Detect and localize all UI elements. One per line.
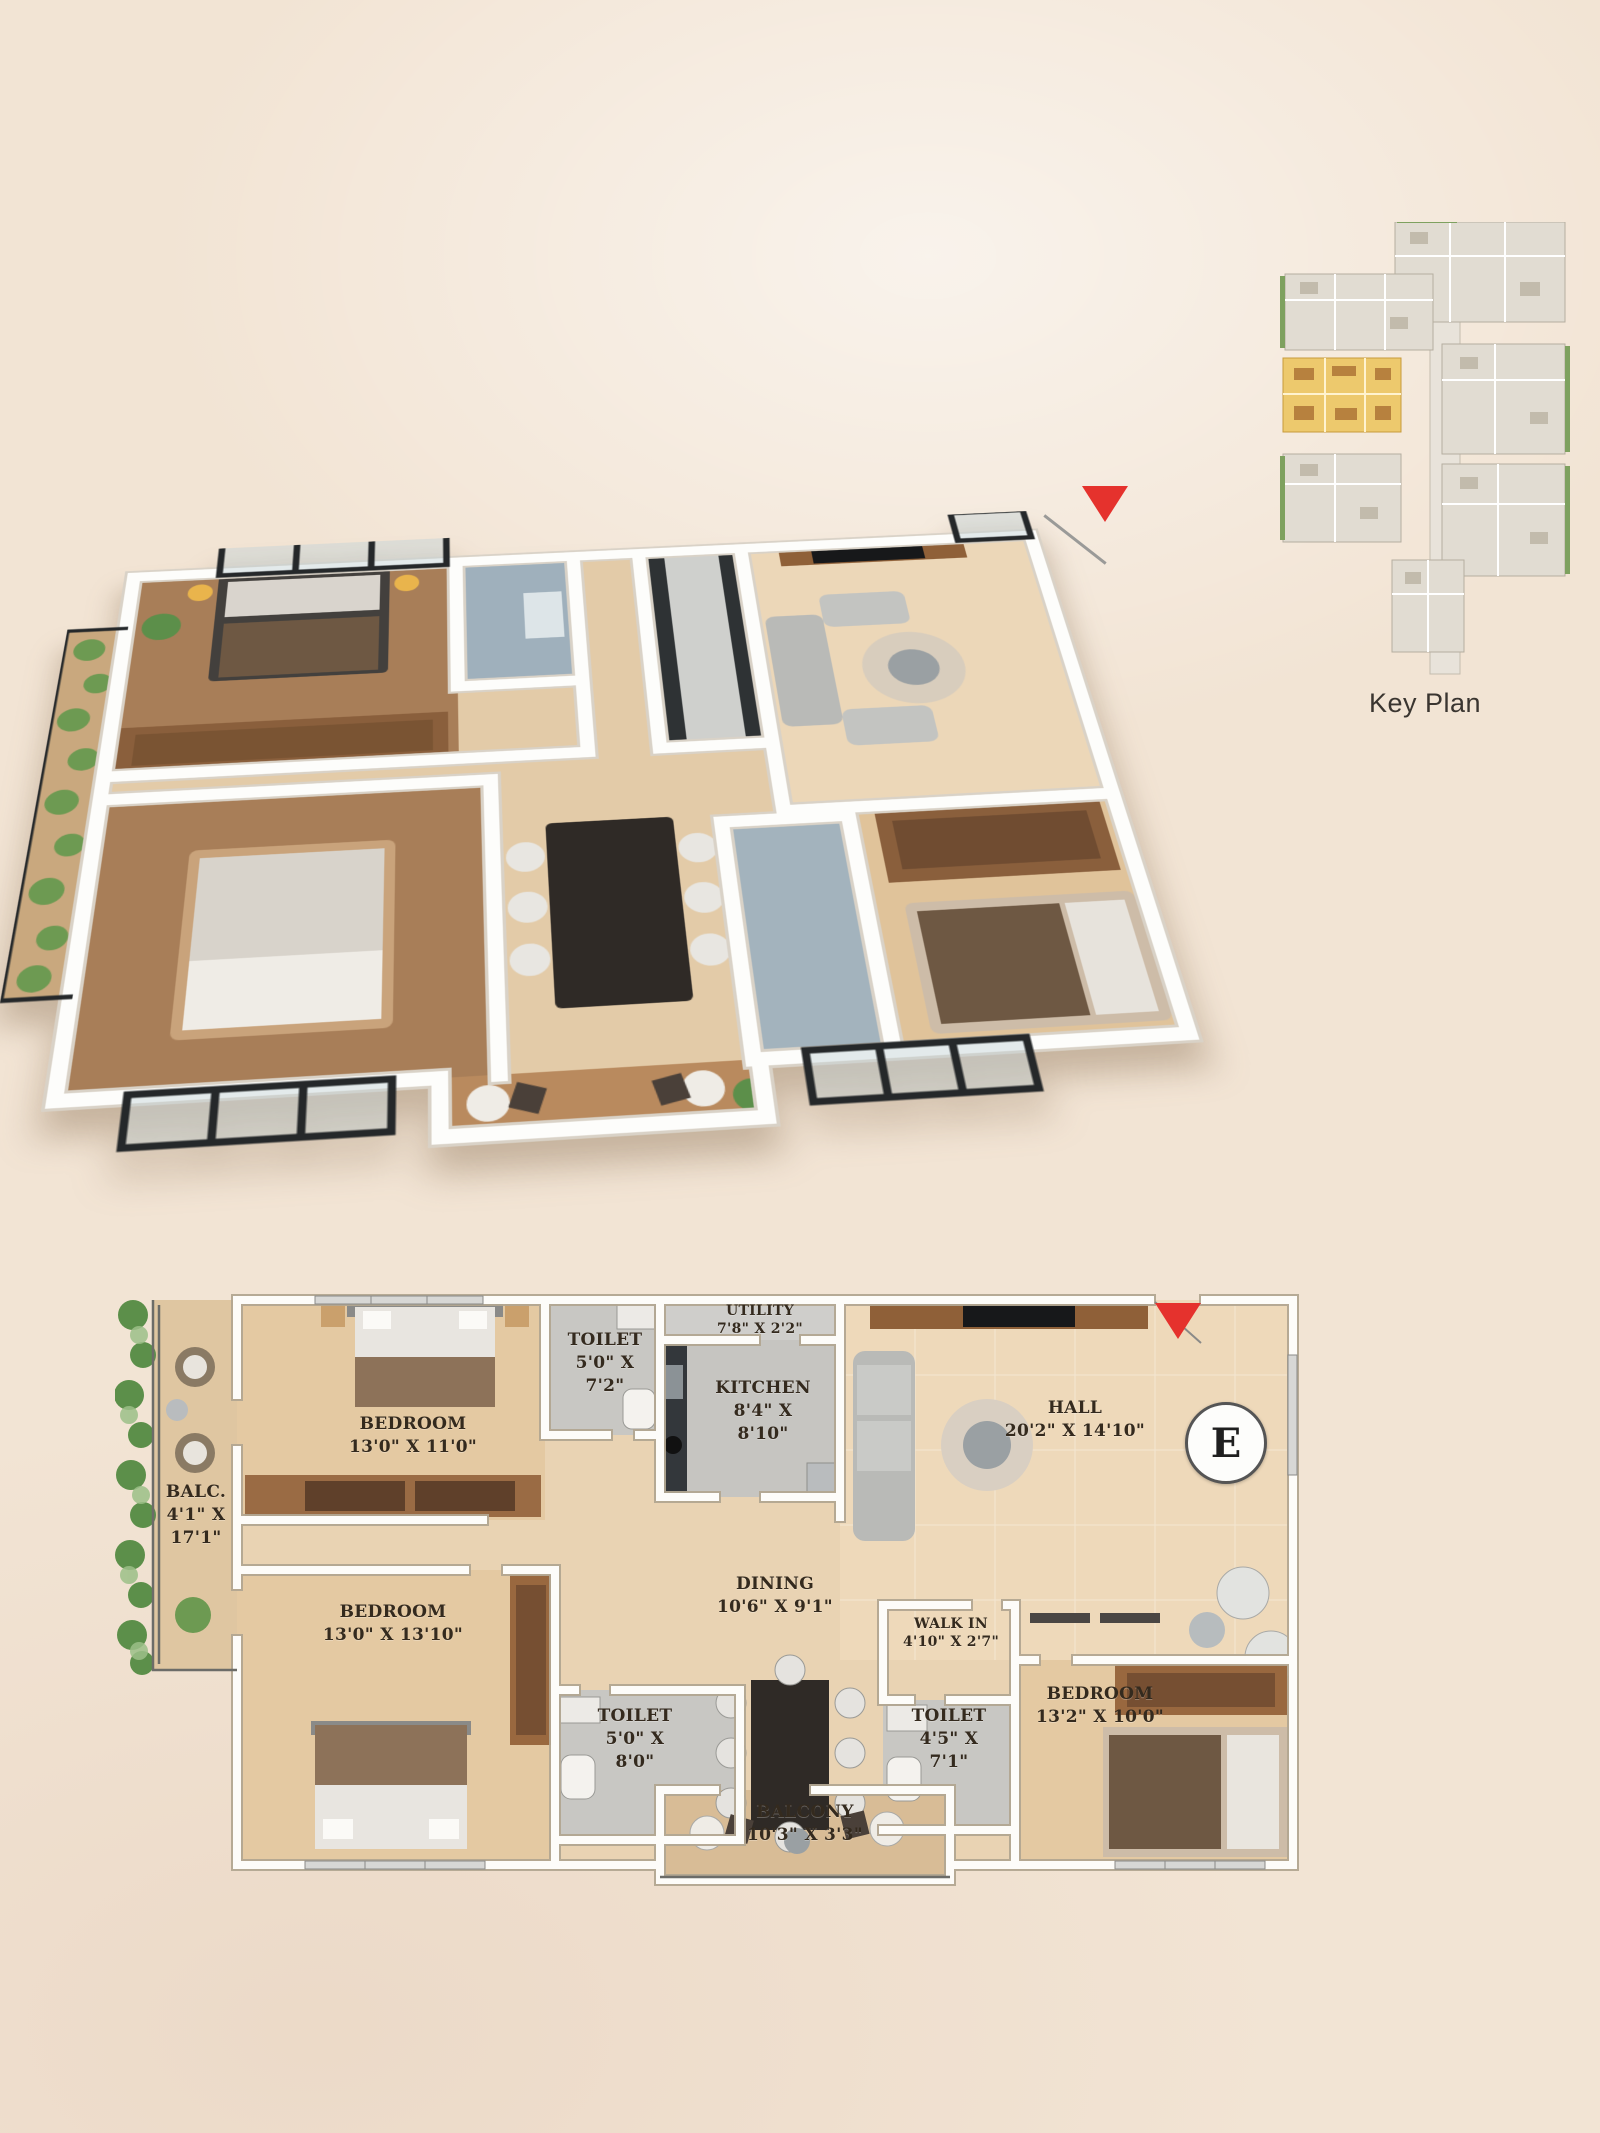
room-name: KITCHEN <box>715 1377 811 1400</box>
room-name: WALK IN <box>903 1615 999 1633</box>
key-plan-figure <box>1280 222 1570 692</box>
room-dims: 4'5" X <box>912 1728 987 1751</box>
room-dims: 7'1" <box>912 1751 987 1774</box>
floor-plan-3d-svg <box>0 509 1285 1190</box>
room-dims: 13'0" X 13'10" <box>323 1624 463 1647</box>
room-dims: 4'1" X <box>166 1504 226 1527</box>
room-label-kitchen: KITCHEN 8'4" X 8'10" <box>715 1377 811 1446</box>
room-label-balcony-bottom: BALCONY 10'3" X 3'3" <box>747 1801 863 1847</box>
room-dims: 4'10" X 2'7" <box>903 1633 999 1651</box>
room-dims: 5'0" X <box>568 1352 643 1375</box>
room-name: TOILET <box>568 1329 643 1352</box>
room-dims: 10'6" X 9'1" <box>717 1596 833 1619</box>
room-name: BALCONY <box>747 1801 863 1824</box>
room-name: BEDROOM <box>1036 1683 1164 1706</box>
room-name: UTILITY <box>717 1302 803 1320</box>
room-dims: 13'2" X 10'0" <box>1036 1706 1164 1729</box>
room-label-bedroom-3: BEDROOM 13'2" X 10'0" <box>1036 1683 1164 1729</box>
room-label-toilet-1: TOILET 5'0" X 7'2" <box>568 1329 643 1398</box>
room-dims: 13'0" X 11'0" <box>349 1436 477 1459</box>
room-label-hall: HALL 20'2" X 14'10" <box>1005 1397 1145 1443</box>
floor-plan-3d-render <box>0 509 1287 1195</box>
room-name: BEDROOM <box>349 1413 477 1436</box>
key-plan-svg <box>1280 222 1570 692</box>
entrance-arrow-icon-2d <box>1155 1303 1201 1339</box>
room-label-bedroom-2: BEDROOM 13'0" X 13'10" <box>323 1601 463 1647</box>
floor-plan-2d: E BEDROOM 13'0" X 11'0" TOILET 5'0" X 7'… <box>115 1285 1305 1910</box>
keyplan-highlighted-unit <box>1283 358 1401 432</box>
room-dims: 8'0" <box>598 1751 673 1774</box>
room-dims: 5'0" X <box>598 1728 673 1751</box>
floor-plan-3d <box>64 420 1144 1120</box>
room-dims: 7'8" X 2'2" <box>717 1320 803 1338</box>
room-dims: 10'3" X 3'3" <box>747 1824 863 1847</box>
room-label-toilet-3: TOILET 4'5" X 7'1" <box>912 1705 987 1774</box>
room-name: BALC. <box>166 1481 226 1504</box>
compass-east-badge: E <box>1185 1402 1267 1484</box>
room-label-toilet-2: TOILET 5'0" X 8'0" <box>598 1705 673 1774</box>
brochure-page: Key Plan <box>0 0 1600 2133</box>
room-name: TOILET <box>598 1705 673 1728</box>
compass-letter: E <box>1211 1420 1242 1467</box>
room-label-walk-in: WALK IN 4'10" X 2'7" <box>903 1615 999 1651</box>
room-label-dining: DINING 10'6" X 9'1" <box>717 1573 833 1619</box>
room-dims: 8'4" X <box>715 1400 811 1423</box>
floor-plan-2d-svg <box>115 1285 1305 1910</box>
room-label-utility: UTILITY 7'8" X 2'2" <box>717 1302 803 1338</box>
room-label-bedroom-1: BEDROOM 13'0" X 11'0" <box>349 1413 477 1459</box>
room-name: TOILET <box>912 1705 987 1728</box>
room-label-balcony-left: BALC. 4'1" X 17'1" <box>166 1481 226 1550</box>
room-dims: 7'2" <box>568 1375 643 1398</box>
room-dims: 17'1" <box>166 1527 226 1550</box>
room-name: BEDROOM <box>323 1601 463 1624</box>
room-name: DINING <box>717 1573 833 1596</box>
entrance-arrow-icon-3d <box>1082 486 1128 522</box>
room-name: HALL <box>1005 1397 1145 1420</box>
key-plan-label: Key Plan <box>1280 688 1570 719</box>
room-dims: 20'2" X 14'10" <box>1005 1420 1145 1443</box>
room-dims: 8'10" <box>715 1423 811 1446</box>
balcony-plants-2d <box>115 1300 156 1675</box>
